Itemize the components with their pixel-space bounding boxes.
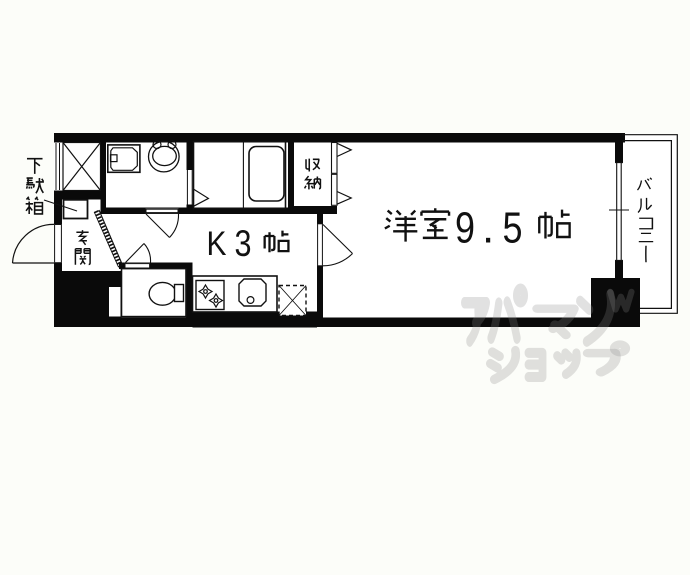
svg-text:K: K (207, 225, 227, 263)
svg-text:5: 5 (503, 204, 523, 253)
svg-text:9: 9 (455, 204, 475, 253)
svg-text:3: 3 (235, 223, 252, 264)
svg-text:.: . (482, 204, 494, 253)
